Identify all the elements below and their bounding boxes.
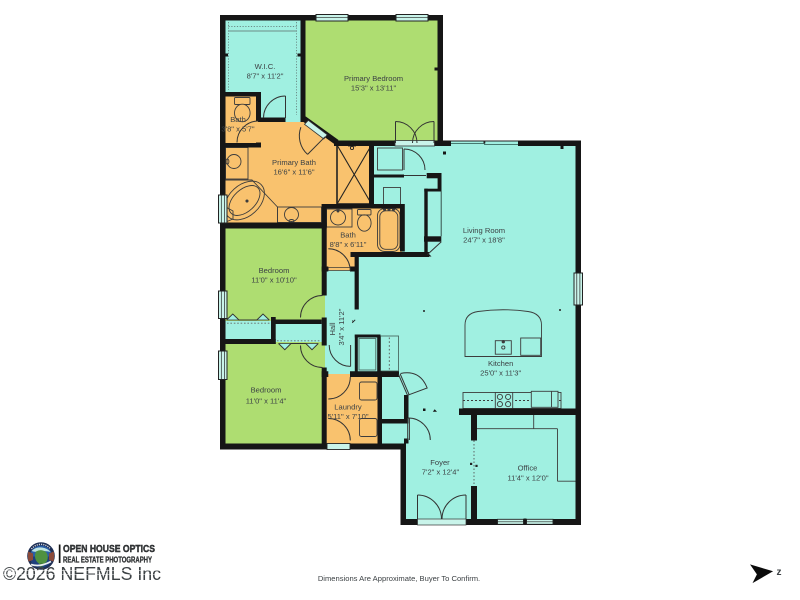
svg-text:Kitchen: Kitchen <box>488 359 513 368</box>
svg-text:3'4" x 11'2": 3'4" x 11'2" <box>337 308 346 345</box>
svg-text:Bath: Bath <box>230 115 246 124</box>
svg-text:24'7" x 18'8": 24'7" x 18'8" <box>463 236 505 245</box>
svg-text:11'0" x 10'10": 11'0" x 10'10" <box>251 276 297 285</box>
svg-text:8'8" x 6'11": 8'8" x 6'11" <box>330 240 367 249</box>
svg-text:©2026 NEFMLS Inc: ©2026 NEFMLS Inc <box>3 563 161 584</box>
svg-text:Primary Bath: Primary Bath <box>272 158 316 167</box>
svg-text:Hall: Hall <box>328 322 337 335</box>
svg-text:Office: Office <box>518 464 538 473</box>
svg-text:7'2" x 12'4": 7'2" x 12'4" <box>422 468 460 477</box>
svg-text:OPEN HOUSE OPTICS: OPEN HOUSE OPTICS <box>63 543 155 555</box>
svg-text:11'4" x 12'0": 11'4" x 12'0" <box>507 474 548 483</box>
svg-text:z: z <box>777 567 782 578</box>
svg-text:Bedroom: Bedroom <box>251 386 282 395</box>
svg-text:Foyer: Foyer <box>430 458 450 467</box>
svg-text:8'7" x 11'2": 8'7" x 11'2" <box>247 72 284 81</box>
svg-text:11'0" x 11'4": 11'0" x 11'4" <box>246 397 287 406</box>
svg-text:Laundry: Laundry <box>334 403 362 412</box>
svg-text:Primary Bedroom: Primary Bedroom <box>344 74 403 83</box>
svg-text:25'0" x 11'3": 25'0" x 11'3" <box>480 369 521 378</box>
svg-text:Dimensions Are Approximate, Bu: Dimensions Are Approximate, Buyer To Con… <box>318 574 480 583</box>
svg-text:3'8" x 5'7": 3'8" x 5'7" <box>221 125 255 134</box>
svg-text:15'3" x 13'11": 15'3" x 13'11" <box>351 84 397 93</box>
svg-text:W.I.C.: W.I.C. <box>255 62 276 71</box>
svg-text:Bedroom: Bedroom <box>259 266 290 275</box>
svg-text:Bath: Bath <box>340 231 356 240</box>
svg-text:16'6" x 11'6": 16'6" x 11'6" <box>273 168 314 177</box>
svg-text:5'11" x 7'10": 5'11" x 7'10" <box>327 412 368 421</box>
svg-text:Living Room: Living Room <box>463 226 505 235</box>
